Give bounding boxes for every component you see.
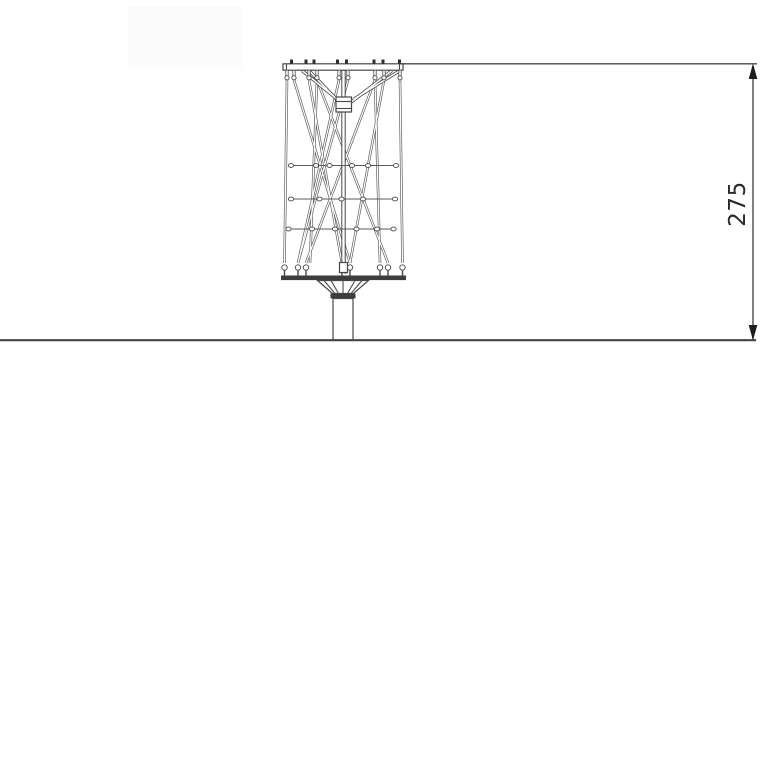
axle-end-fitting [340,263,348,273]
dimension-label: 275 [725,181,751,226]
bearing-collar [331,294,356,299]
arrow-down-icon [749,325,758,341]
top-ring-bar [283,64,403,70]
center-hub [336,97,352,112]
carousel-structure [281,60,406,341]
top-bolts [290,60,401,64]
bottom-ring-bar [281,276,406,281]
height-dimension: 275 [400,64,757,341]
faint-watermark [128,6,242,68]
bearing-assembly [318,281,369,299]
arrow-up-icon [749,64,758,80]
support-post [333,299,353,341]
technical-drawing-page: 275 [0,0,768,768]
technical-drawing: 275 [0,0,768,768]
